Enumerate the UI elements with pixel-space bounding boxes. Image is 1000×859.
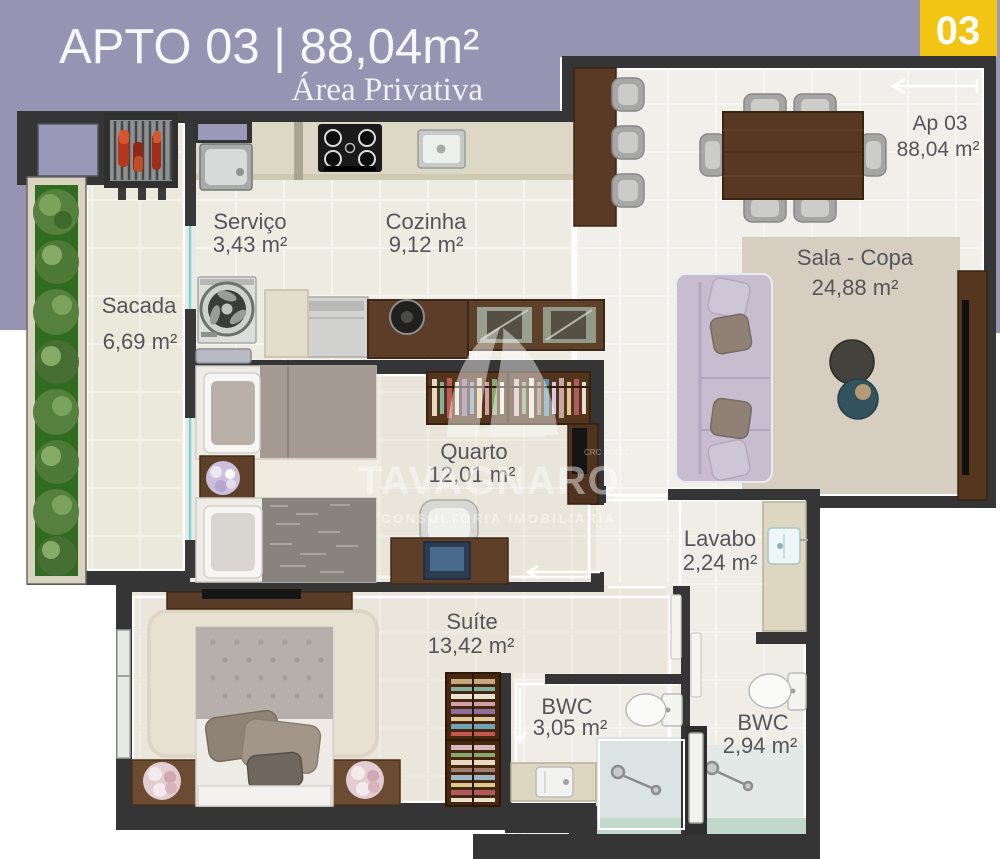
svg-text:Cozinha: Cozinha <box>386 209 467 234</box>
svg-text:BWC: BWC <box>737 710 788 735</box>
svg-text:03: 03 <box>936 9 981 53</box>
svg-text:APTO 03 | 88,04m²: APTO 03 | 88,04m² <box>59 20 479 74</box>
svg-text:3,43 m²: 3,43 m² <box>213 232 288 257</box>
svg-text:Ap 03: Ap 03 <box>913 112 968 135</box>
svg-text:Área Privativa: Área Privativa <box>291 71 483 108</box>
svg-text:Suíte: Suíte <box>446 609 497 634</box>
svg-text:24,88 m²: 24,88 m² <box>812 275 899 300</box>
svg-text:TAVAGNARO: TAVAGNARO <box>358 459 620 503</box>
svg-text:2,94 m²: 2,94 m² <box>723 733 798 758</box>
svg-text:CONSULTORIA IMOBILIÁRIA: CONSULTORIA IMOBILIÁRIA <box>381 511 617 526</box>
svg-text:Lavabo: Lavabo <box>684 526 756 551</box>
svg-text:Sacada: Sacada <box>102 293 177 318</box>
svg-text:88,04 m²: 88,04 m² <box>897 138 980 161</box>
svg-text:3,05 m²: 3,05 m² <box>533 715 608 740</box>
svg-text:9,12 m²: 9,12 m² <box>389 232 464 257</box>
svg-text:Serviço: Serviço <box>213 209 286 234</box>
svg-text:6,69 m²: 6,69 m² <box>103 329 178 354</box>
svg-text:Sala - Copa: Sala - Copa <box>797 245 914 270</box>
svg-text:2,24 m²: 2,24 m² <box>683 550 758 575</box>
svg-text:CRC J-05342: CRC J-05342 <box>584 448 633 457</box>
svg-text:13,42 m²: 13,42 m² <box>428 633 515 658</box>
